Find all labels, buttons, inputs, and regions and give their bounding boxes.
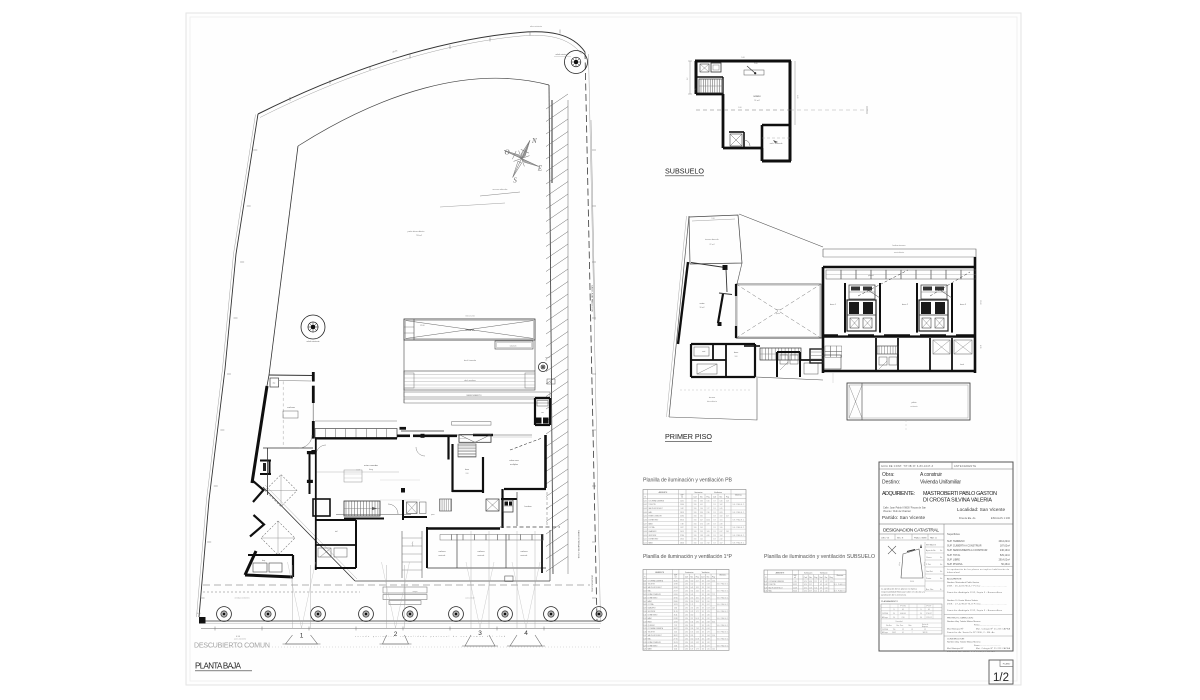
svg-text:Mat. Colegio Nº 21.223 CAPBA: Mat. Colegio Nº 21.223 CAPBA [976,628,1011,631]
svg-text:No: No [940,550,942,552]
svg-text:TOILETTE: TOILETTE [648,632,655,634]
svg-text:1.69: 1.69 [707,531,710,533]
svg-text:0-17: 0-17 [643,635,646,637]
svg-text:1.84: 1.84 [690,621,693,623]
svg-text:1/10: 1/10 [685,645,688,647]
svg-text:PLANO: PLANO [1003,663,1011,666]
svg-text:3.42: 3.42 [681,508,684,510]
svg-text:0-04: 0-04 [764,591,767,593]
svg-text:0.53: 0.53 [707,608,710,610]
svg-text:2.94: 2.94 [707,580,710,582]
svg-text:1.88: 1.88 [700,535,703,537]
svg-text:1.42: 1.42 [712,649,715,651]
svg-text:Observac.: Observac. [836,575,844,577]
svg-text:1/3: 1/3 [714,542,716,544]
svg-text:No: No [940,564,942,566]
svg-text:7.48: 7.48 [681,523,684,525]
svg-text:2.01: 2.01 [794,581,797,583]
svg-text:N: N [645,497,646,499]
svg-text:3.00 x 12.00: 3.00 x 12.00 [465,316,474,318]
svg-text:2.07: 2.07 [707,604,710,606]
svg-text:acera existente: acera existente [234,638,246,641]
svg-text:Firma:........................: Firma:..................................… [974,624,1001,627]
svg-text:1/10: 1/10 [685,597,688,599]
svg-text:Gas Nat.: Gas Nat. [926,570,934,573]
svg-text:1/3: 1/3 [714,527,716,529]
svg-text:0-09: 0-09 [644,531,647,533]
svg-text:A construir: A construir [920,472,942,478]
svg-text:Observac.: Observac. [735,495,743,497]
svg-text:0-18: 0-18 [643,638,646,640]
svg-text:dep: dep [273,383,276,385]
svg-text:1.00: 1.00 [738,107,742,109]
svg-text:1/10: 1/10 [685,635,688,637]
svg-text:1.15: 1.15 [707,649,710,651]
svg-text:39.10: 39.10 [680,519,684,521]
svg-text:rampa: rampa [413,590,418,593]
svg-text:2.79: 2.79 [696,649,699,651]
svg-text:1/3: 1/3 [702,638,704,640]
svg-text:0-01: 0-01 [644,500,647,502]
svg-text:Nec: Nec [691,577,694,579]
svg-text:canero: canero [545,357,550,359]
svg-text:23.77: 23.77 [674,591,678,593]
svg-text:2914,02m²: 2914,02m² [999,558,1011,561]
svg-text:VESTIDOR: VESTIDOR [648,611,657,613]
svg-text:10.44: 10.44 [706,519,710,521]
svg-text:1/10: 1/10 [685,584,688,586]
svg-text:1.85: 1.85 [690,632,693,634]
svg-text:aprobación de la estructura: aprobación de la estructura [881,594,907,597]
svg-text:terraza: terraza [709,396,716,399]
svg-text:balcon terraza: balcon terraza [893,244,907,247]
svg-text:8.87: 8.87 [681,527,684,529]
svg-text:35.11: 35.11 [674,615,678,617]
svg-text:bano: bano [465,469,469,471]
svg-text:1/3: 1/3 [702,649,704,651]
svg-text:2.65: 2.65 [690,645,693,647]
svg-text:0-05: 0-05 [644,516,647,518]
svg-text:4.39: 4.39 [707,523,710,525]
svg-text:CIRC: VII: CIRC: VII [881,537,889,539]
svg-text:TOILETTE: TOILETTE [648,584,655,586]
svg-text:1/10: 1/10 [685,591,688,593]
svg-text:0.94: 0.94 [707,628,710,630]
svg-text:1.62: 1.62 [720,504,723,506]
svg-text:la finca o local: la finca o local [947,572,960,574]
svg-text:0-03: 0-03 [764,587,767,589]
svg-text:Domicilio: Ambágala 1112, Dept: Domicilio: Ambágala 1112, Depto 3 - Buen… [947,609,1002,612]
svg-text:0-07: 0-07 [643,601,646,603]
svg-text:2.45: 2.45 [700,527,703,529]
svg-text:Firma:........................: Firma:..................................… [974,644,1001,647]
svg-text:acera verde: acera verde [465,598,475,600]
svg-text:20.58: 20.58 [674,587,678,589]
svg-text:7.73: 7.73 [674,625,677,627]
svg-text:0.78: 0.78 [690,611,693,613]
svg-text:0.45: 0.45 [720,508,723,510]
svg-text:VESTIDOR: VESTIDOR [649,535,658,537]
svg-text:Mat. Municipal Nº: Mat. Municipal Nº [947,628,963,631]
svg-text:1/3: 1/3 [702,642,704,644]
svg-text:Nombre: Arq. Teódor Matias Mor: Nombre: Arq. Teódor Matias Moreno [947,641,981,644]
svg-text:semicub.: semicub. [477,555,485,557]
svg-text:0-01: 0-01 [643,580,646,582]
svg-text:Nec: Nec [825,577,828,579]
svg-text:1276.12: 1276.12 [926,617,932,619]
svg-text:5.29: 5.29 [726,500,729,502]
svg-text:0-16: 0-16 [643,632,646,634]
svg-text:25.84: 25.84 [680,516,684,518]
svg-text:Nec: Nec [700,497,703,499]
svg-text:SUP: SUP [674,575,677,577]
svg-text:Cloaca: Cloaca [926,557,932,559]
svg-text:4: 4 [524,630,528,637]
svg-text:2.05: 2.05 [690,597,693,599]
svg-text:AMBIENTE: AMBIENTE [659,491,669,494]
svg-text:0.85: 0.85 [707,625,710,627]
svg-text:AMBIENTE: AMBIENTE [776,571,786,574]
svg-text:1/10: 1/10 [694,519,697,521]
svg-text:0.51: 0.51 [700,504,703,506]
svg-text:1/10: 1/10 [694,535,697,537]
svg-text:0.47: 0.47 [700,519,703,521]
svg-text:1/10: 1/10 [694,508,697,510]
svg-text:3.2: 3.2 [687,78,689,80]
svg-text:Domicilio: Av. Santa Fe Nº 293: Domicilio: Av. Santa Fe Nº 2930, 2 - BS.… [947,631,995,634]
svg-text:2.50: 2.50 [707,601,710,603]
svg-text:2.00: 2.00 [465,473,468,475]
svg-text:7.48: 7.48 [696,628,699,630]
svg-text:0-14: 0-14 [643,625,646,627]
svg-text:1.84: 1.84 [720,535,723,537]
svg-text:12.58: 12.58 [674,621,678,623]
svg-text:1/10: 1/10 [694,512,697,514]
svg-text:5.06: 5.06 [696,632,699,634]
svg-text:30: 30 [920,613,922,615]
svg-text:0-05: 0-05 [643,594,646,596]
svg-text:0.45: 0.45 [690,587,693,589]
svg-text:0.40: 0.40 [720,500,723,502]
svg-text:2.68: 2.68 [707,621,710,623]
svg-text:Observac.: Observac. [719,575,727,577]
svg-text:2.57: 2.57 [809,584,812,586]
svg-text:FRACC: MMM: FRACC: MMM [914,536,927,539]
svg-text:1.32: 1.32 [707,642,710,644]
svg-text:Planilla de iluminación y vent: Planilla de iluminación y ventilación 1°… [643,554,733,560]
svg-text:1.46: 1.46 [707,615,710,617]
svg-text:SUP. PISCINA: SUP. PISCINA [947,563,963,566]
svg-text:DGR.: 26-22257614-7 Firma:..: DGR.: 26-22257614-7 Firma:..............… [947,585,1007,588]
svg-text:obra existente: obra existente [530,25,542,28]
svg-text:2.36: 2.36 [707,512,710,514]
svg-text:1/3: 1/3 [820,581,822,583]
svg-text:12.81: 12.81 [674,604,678,606]
svg-text:18.13: 18.13 [680,512,684,514]
svg-text:1/10: 1/10 [685,642,688,644]
svg-text:1/10: 1/10 [685,628,688,630]
svg-text:0.37: 0.37 [707,597,710,599]
svg-text:2.09: 2.09 [690,628,693,630]
svg-text:0.63: 0.63 [707,584,710,586]
svg-text:1/10: 1/10 [694,527,697,529]
svg-text:1/10: 1/10 [685,601,688,603]
svg-text:1/3: 1/3 [702,591,704,593]
svg-text:La aprobación de los planos no: La aprobación de los planos no implica h… [947,568,1010,571]
svg-text:dep.: dep. [262,560,266,562]
svg-text:16.15: 16.15 [680,531,684,533]
svg-text:12.00: 12.00 [420,325,425,327]
svg-text:1.94: 1.94 [712,580,715,582]
svg-text:1/2: 1/2 [993,672,1009,684]
svg-text:1/10: 1/10 [694,504,697,506]
svg-text:0-10: 0-10 [643,611,646,613]
svg-text:0.74: 0.74 [700,523,703,525]
svg-text:Mat. Colegio Nº 21.223 CAPBA: Mat. Colegio Nº 21.223 CAPBA [976,647,1011,650]
svg-text:Obra:: Obra: [882,472,895,478]
svg-text:N: N [531,137,537,145]
svg-text:Nombre: Arq. Teódor Matias Mor: Nombre: Arq. Teódor Matias Moreno [947,620,981,623]
svg-text:0-08: 0-08 [644,527,647,529]
svg-text:1/3: 1/3 [702,615,704,617]
svg-text:0-07: 0-07 [644,523,647,525]
svg-text:3.10: 3.10 [690,584,693,586]
svg-text:responsabilidad Municipal sobr: responsabilidad Municipal sobre el cálcu… [881,591,926,594]
svg-text:2.69: 2.69 [690,601,693,603]
svg-text:cochera: cochera [438,551,446,553]
svg-text:10.87: 10.87 [674,628,678,630]
svg-text:coch. subsuelo: coch. subsuelo [770,143,783,145]
svg-text:0-02: 0-02 [644,504,647,506]
svg-text:246,19m²: 246,19m² [1000,549,1010,552]
svg-text:3746.37: 3746.37 [926,613,932,615]
svg-text:patio descubierto: patio descubierto [408,230,425,233]
svg-text:1/3: 1/3 [702,635,704,637]
svg-text:1.20: 1.20 [830,581,833,583]
svg-text:1/10: 1/10 [694,531,697,533]
svg-text:1/3: 1/3 [702,632,704,634]
svg-text:35.22: 35.22 [793,584,797,586]
svg-text:Domicilio: Ambágala 1112, Dept: Domicilio: Ambágala 1112, Depto 3 - Buen… [947,591,1002,594]
svg-text:2.62: 2.62 [707,618,710,620]
svg-text:1.48: 1.48 [707,594,710,596]
svg-text:existente: existente [910,405,917,408]
svg-text:1.20: 1.20 [700,542,703,544]
svg-text:7.32: 7.32 [707,542,710,544]
svg-text:2.4: 2.4 [893,617,895,619]
svg-text:SUP. SEMICUBIERTA A CONSTRUIR: SUP. SEMICUBIERTA A CONSTRUIR [947,549,988,552]
svg-text:51 m2: 51 m2 [754,100,760,102]
svg-text:5.32: 5.32 [696,642,699,644]
svg-text:1/10: 1/10 [685,611,688,613]
svg-text:1/10: 1/10 [685,608,688,610]
svg-text:paso: paso [431,514,435,516]
svg-text:0-15: 0-15 [643,628,646,630]
svg-text:0-12: 0-12 [644,542,647,544]
svg-text:CONSTRUCTOR:: CONSTRUCTOR: [947,639,965,641]
svg-text:0-11: 0-11 [643,615,646,617]
svg-text:31.19: 31.19 [674,611,678,613]
svg-text:Agua de Ba: Agua de Ba [926,549,935,552]
svg-text:3: 3 [478,630,482,637]
svg-text:19.22: 19.22 [680,539,684,541]
svg-text:0.50: 0.50 [690,638,693,640]
svg-text:PAR: 11: PAR: 11 [930,536,937,539]
svg-text:1/10: 1/10 [685,580,688,582]
svg-text:Mat. Municipal Nº: Mat. Municipal Nº [947,647,963,650]
svg-text:Planilla de iluminación y vent: Planilla de iluminación y ventilación PB [643,477,733,483]
svg-text:1.90: 1.90 [700,508,703,510]
svg-text:solarium: solarium [510,346,517,348]
svg-text:arbol existente: arbol existente [306,340,320,343]
svg-text:Planilla de iluminación y vent: Planilla de iluminación y ventilación SU… [764,554,875,560]
svg-text:PROYECTO, DIRECCION:: PROYECTO, DIRECCION: [947,618,974,620]
svg-text:2014,22m²: 2014,22m² [999,540,1011,543]
svg-text:1/10: 1/10 [685,615,688,617]
svg-text:dorm: dorm [734,351,739,354]
svg-text:962.26: 962.26 [923,632,928,634]
svg-text:SUBSUELO: SUBSUELO [665,167,704,176]
svg-text:veredas existentes: veredas existentes [235,597,250,600]
svg-text:1/3: 1/3 [702,601,704,603]
svg-text:4.17: 4.17 [696,580,699,582]
svg-text:Sub.Bas.: Sub.Bas. [886,625,893,627]
svg-text:2.16: 2.16 [674,632,677,634]
svg-text:1/3: 1/3 [714,504,716,506]
svg-text:Iluminacion: Iluminacion [694,492,702,494]
svg-text:3.57: 3.57 [690,618,693,620]
svg-text:30.00: 30.00 [910,581,914,583]
svg-text:0-09: 0-09 [643,608,646,610]
svg-text:DGR.: 27-22962773-8 Firma:..: DGR.: 27-22962773-8 Firma:..............… [947,603,1007,606]
svg-text:semicub.: semicub. [520,555,528,557]
svg-text:1/3: 1/3 [702,628,704,630]
svg-text:9.60: 9.60 [741,57,745,59]
svg-text:1/10: 1/10 [685,621,688,623]
svg-text:0-04: 0-04 [644,512,647,514]
svg-text:S: S [513,177,517,185]
svg-text:2.60: 2.60 [754,63,758,65]
svg-text:SUP: SUP [680,495,683,497]
svg-text:estar: estar [700,302,705,305]
svg-text:Partido: San Vicente: Partido: San Vicente [882,515,925,520]
svg-text:1/3: 1/3 [702,580,704,582]
svg-text:DORMITORIO: DORMITORIO [648,645,659,647]
svg-text:2.33: 2.33 [700,531,703,533]
svg-text:Vicente / Club de Chacras': Vicente / Club de Chacras' [883,510,912,513]
svg-text:sotano: sotano [753,95,761,98]
svg-text:LINEA MUNICIPAL: LINEA MUNICIPAL [591,575,594,593]
svg-text:DESCUBIERTO COMUN: DESCUBIERTO COMUN [194,643,271,650]
svg-text:1/10: 1/10 [804,581,807,583]
svg-text:2.45: 2.45 [690,594,693,596]
svg-text:3.00: 3.00 [734,356,737,358]
svg-text:No: No [940,571,942,573]
svg-text:7.06: 7.06 [902,617,905,619]
svg-text:7.72: 7.72 [712,594,715,596]
svg-text:1/3: 1/3 [714,512,716,514]
svg-text:6.40: 6.40 [796,95,798,98]
svg-text:acceso vehicular: acceso vehicular [493,189,508,191]
svg-text:27.86: 27.86 [680,535,684,537]
svg-text:10.01: 10.01 [696,618,700,620]
svg-text:2.15: 2.15 [707,591,710,593]
svg-text:3.97: 3.97 [809,591,812,593]
svg-text:1/3: 1/3 [714,535,716,537]
svg-text:1/10: 1/10 [685,587,688,589]
svg-text:Iluminacion: Iluminacion [804,572,812,574]
svg-text:2.42: 2.42 [720,539,723,541]
svg-text:1.79: 1.79 [707,632,710,634]
svg-text:SUP. LIBRE: SUP. LIBRE [947,558,960,561]
svg-text:2.85: 2.85 [696,608,699,610]
svg-text:SEC: E: SEC: E [897,537,904,539]
svg-text:22.88: 22.88 [674,618,678,620]
svg-text:0-03: 0-03 [643,587,646,589]
svg-text:Domicilio: Av. Santa Fe Nº 293: Domicilio: Av. Santa Fe Nº 2930, 2 - BS.… [947,650,995,653]
svg-text:28.56: 28.56 [680,542,684,544]
svg-text:La aprobación de los planos no: La aprobación de los planos no implica [881,588,918,591]
svg-text:salon usos: salon usos [509,460,519,462]
svg-text:5.93: 5.93 [674,645,677,647]
svg-text:placard: placard [868,274,874,277]
svg-text:1.73: 1.73 [690,604,693,606]
svg-text:PRIMER PISO: PRIMER PISO [665,432,712,441]
svg-text:5.90: 5.90 [711,218,714,220]
svg-text:1/10: 1/10 [804,584,807,586]
svg-text:N: N [765,577,766,579]
svg-text:1.64: 1.64 [707,635,710,637]
svg-text:30: 30 [893,613,895,615]
svg-text:8.31: 8.31 [696,597,699,599]
svg-text:SUP: SUP [794,575,797,577]
svg-text:22 m2: 22 m2 [709,244,714,246]
svg-text:E: E [537,165,543,173]
svg-text:3.72: 3.72 [696,611,699,613]
svg-text:36.42: 36.42 [892,632,896,634]
svg-text:5.01: 5.01 [814,587,817,589]
svg-text:P. Pat.: P. Pat. [926,563,932,566]
svg-text:0.83: 0.83 [720,512,723,514]
svg-text:1/10: 1/10 [694,500,697,502]
svg-text:SEMICUBIERTO: SEMICUBIERTO [466,395,482,397]
svg-text:1/3: 1/3 [702,645,704,647]
svg-text:cochera: cochera [520,551,528,553]
svg-text:CALLE INTERNA DEL CLUB: CALLE INTERNA DEL CLUB [577,530,580,559]
svg-text:1.55: 1.55 [825,591,828,593]
svg-text:6046.00: 6046.00 [900,613,906,615]
svg-text:0-06: 0-06 [644,519,647,521]
svg-text:ANTECEDENTE: ANTECEDENTE [954,465,976,468]
svg-text:3.6: 3.6 [920,617,922,619]
svg-text:1/3: 1/3 [820,587,822,589]
svg-text:750m2: 750m2 [416,235,423,237]
svg-text:3.36: 3.36 [700,512,703,514]
svg-text:dorm 2: dorm 2 [902,303,908,306]
svg-text:1.41: 1.41 [700,539,703,541]
svg-text:3.81: 3.81 [700,516,703,518]
svg-text:No: No [940,557,942,559]
svg-text:deck humedo: deck humedo [464,360,477,362]
svg-text:2.12: 2.12 [814,581,817,583]
svg-text:estar comedor: estar comedor [364,464,378,467]
svg-text:1: 1 [300,633,304,640]
svg-text:17.89: 17.89 [674,584,678,586]
svg-text:1/3: 1/3 [702,611,704,613]
svg-text:35.23: 35.23 [674,642,678,644]
svg-text:0.86: 0.86 [700,500,703,502]
svg-text:1.07: 1.07 [690,649,693,651]
